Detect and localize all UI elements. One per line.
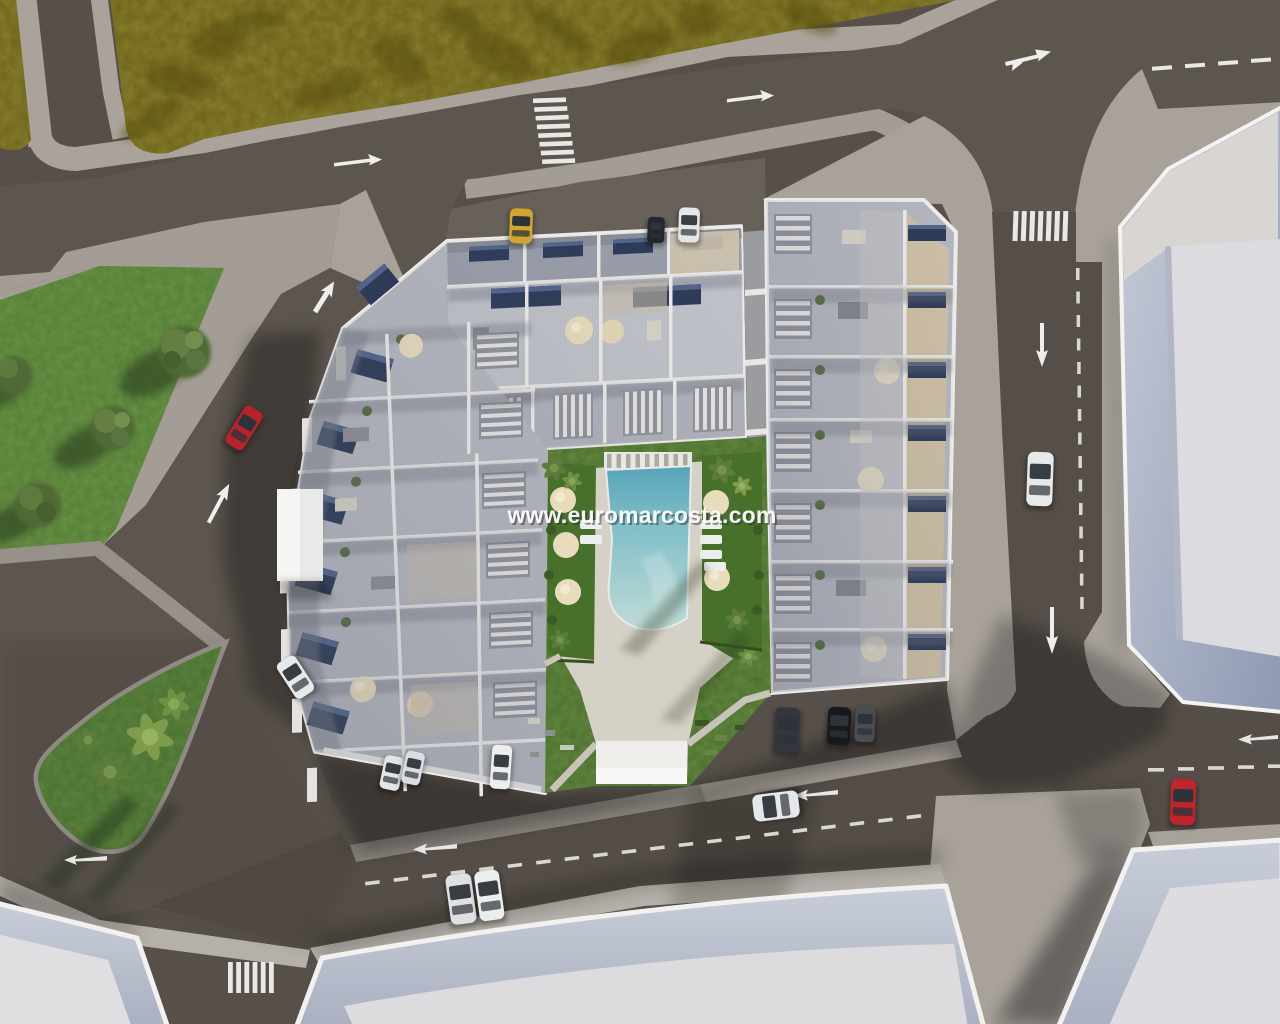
svg-text:www.euromarcosta.com: www.euromarcosta.com	[506, 502, 776, 528]
